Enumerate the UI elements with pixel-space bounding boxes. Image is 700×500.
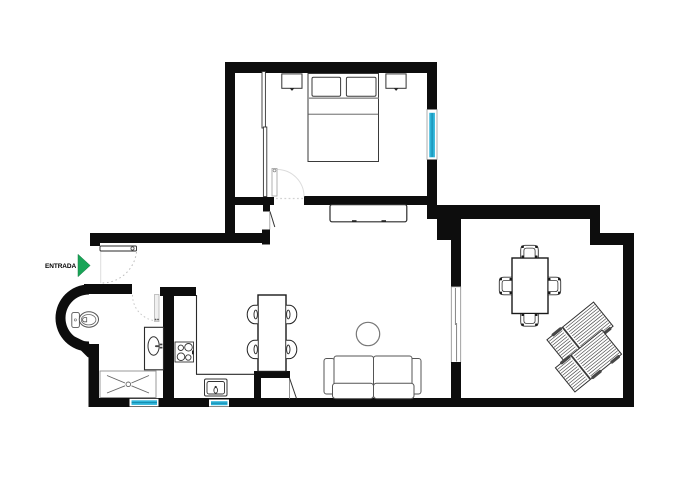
svg-text:ENTRADA: ENTRADA [45,263,76,270]
